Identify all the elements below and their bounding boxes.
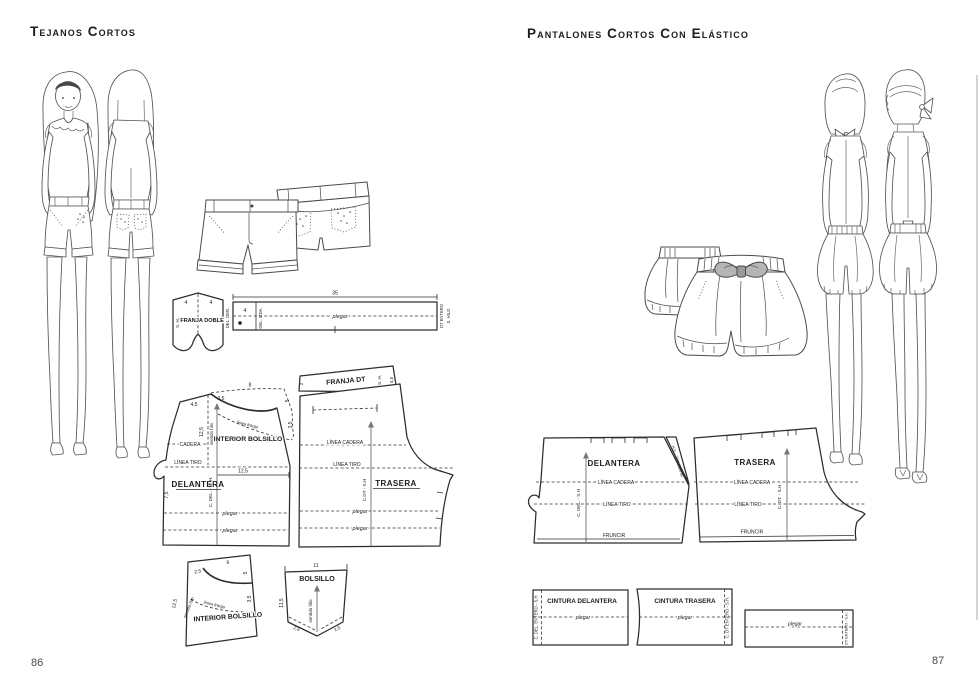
girl-front-shorts [45, 206, 92, 249]
back-grain-label: C.DT - S.H [362, 479, 367, 501]
girl-back-waistband [113, 200, 150, 209]
front-interior-bolsillo-label: INTERIOR BOLSILLO [214, 436, 283, 443]
rfront-linea-cadera: LÍNEA CADERA [598, 479, 635, 486]
front-meas-35: 3,5 [288, 421, 294, 428]
front-meas-8: 8 [249, 383, 252, 389]
girl-c-head [825, 74, 865, 134]
strip-front-left-label: DEL. IZDA. [258, 307, 263, 328]
pattern-piece-waist-strip: 35 4 DEL. DER. DEL. IZDA. plegar DT ENTE… [225, 291, 451, 334]
girl-back-feet [116, 447, 149, 458]
flat-bow-knot [737, 266, 746, 277]
front-cadera-label: CADERA [180, 442, 202, 448]
back-linea-cadera: LÍNEA CADERA [327, 439, 364, 446]
girl-d-flipflop-right [912, 472, 927, 483]
girl-c-feet [830, 452, 862, 465]
pocket-meas-115: 11,5 [279, 598, 285, 608]
front-waistband-label: CINTURA DELANTERA [547, 598, 617, 605]
right-strip-fold: plegar [787, 622, 802, 628]
franja-doble-width-right: 4 [210, 300, 213, 306]
pocket-label: BOLSILLO [299, 576, 335, 583]
pattern-piece-front-waistband: CINTURA DELANTERA plegar C. DEL. ENTERO … [533, 590, 628, 645]
pattern-piece-front-left-page: 4,5 2,5 8 5 3,5 12,5 sentido hilo línea … [154, 383, 294, 547]
strip-grain-label-2: S. HILO [446, 308, 451, 324]
pattern-piece-right-strip: plegar DT ENTERO - S.H. [745, 610, 853, 647]
strip-fold-label: plegar [332, 314, 348, 320]
back-waistband-grain: C. DT ENTERO - S.H. [725, 597, 730, 638]
illustration-girls-elastic-shorts [817, 70, 936, 483]
back-linea-tiro: LÍNEA TIRO [333, 461, 361, 468]
rback-grain-label: C. DT. - S.H [777, 485, 782, 510]
girl-d-head [886, 70, 925, 124]
right-strip-grain: DT ENTERO - S.H. [845, 612, 849, 645]
back-waistband-label: CINTURA TRASERA [654, 598, 716, 605]
flat-eback-waistband [659, 247, 721, 258]
girl-c-leg-right [852, 294, 862, 454]
front-linea-tiro-label: LÍNEA TIRO [174, 459, 202, 466]
girl-d-flipflop-left [895, 468, 910, 479]
girl-d-leg-left [892, 294, 907, 468]
book-spread: Tejanos Cortos Pantalones Cortos Con Elá… [0, 0, 980, 700]
pattern-piece-franja-doble: 4 4 S. H. FRANJA DOBLE [173, 293, 224, 351]
strip-button-mark [238, 321, 242, 325]
front-meas-125-vert: 12,5 [199, 427, 205, 437]
front-meas-75: 7,5 [164, 491, 170, 498]
pattern-spread-graphic: 4 4 S. H. FRANJA DOBLE 35 4 DEL. DER. DE… [0, 0, 980, 700]
strip-front-right-label: DEL. DER. [225, 308, 230, 328]
girl-front-cuffs [44, 247, 93, 257]
franja-dt-meas-45: 4,5 [389, 376, 394, 383]
front-waistband-fold: plegar [575, 615, 591, 621]
pocket-grain-hint: sentido hilo [308, 599, 313, 623]
rfront-fruncir: FRUNCIR [603, 533, 626, 539]
back-waistband-fold: plegar [677, 615, 693, 621]
rback-label: TRASERA [734, 458, 775, 467]
back-fold-1: plegar [352, 509, 368, 515]
girl-front-leg-right [75, 257, 87, 443]
front-waistband-grain: C. DEL. ENTERO - S.H [534, 596, 539, 640]
franja-dt-meas-2: 2 [299, 382, 304, 385]
rfront-grain-label: C. DEL. - S.H [576, 489, 581, 517]
girl-back-shorts [109, 209, 153, 250]
flat-front-body [199, 212, 297, 264]
lining-meas-35: 3,5 [247, 595, 253, 602]
girl-front-leg-left [47, 257, 62, 443]
rback-fruncir: FRUNCIR [741, 530, 764, 536]
girl-d-leg-right [916, 294, 926, 472]
strip-length: 35 [332, 291, 338, 297]
girl-c-tee [825, 136, 866, 226]
pocket-meas-11: 11 [313, 563, 318, 569]
pattern-piece-front-right-page: DELANTERA LÍNEA CADERA LÍNEA TIRO C. DEL… [528, 437, 690, 543]
front-fold-2: plegar [222, 528, 238, 534]
girl-d-bubble-shorts [879, 233, 936, 294]
girl-front-feet [51, 443, 87, 455]
illustration-girls-denim-shorts [42, 70, 157, 458]
front-fold-1: plegar [222, 511, 238, 517]
back-piece-label: TRASERA [375, 479, 416, 488]
pattern-piece-pocket: 11 BOLSILLO sentido hilo 11,5 2,5 2,5 [279, 563, 347, 636]
rfront-linea-tiro: LÍNEA TIRO [603, 501, 631, 508]
pattern-piece-back-left-page: FRANJA DT 2 S. H. 4,5 LÍNEA CADERA LÍNEA… [299, 366, 455, 547]
franja-doble-label: FRANJA DOBLE [180, 318, 224, 324]
front-meas-45: 4,5 [191, 402, 198, 408]
franja-doble-width-left: 4 [185, 300, 188, 306]
girl-c-bubble-shorts [817, 234, 873, 294]
front-meas-25: 2,5 [218, 396, 225, 402]
strip-grain-label-1: DT ENTERO [439, 303, 444, 328]
front-meas-5: 5 [285, 399, 291, 402]
strip-width: 4 [244, 308, 247, 314]
flat-sketch-denim-shorts [197, 182, 370, 274]
girl-d-bow-knot [920, 105, 925, 110]
back-fold-2: plegar [352, 526, 368, 532]
rfront-label: DELANTERA [588, 459, 641, 468]
franja-dt-grain: S. H. [377, 375, 382, 385]
girl-back-leg-left [111, 258, 126, 447]
lining-meas-125: 12,5 [171, 598, 179, 609]
girl-c-elastic-waist [828, 226, 863, 234]
front-meas-125-horiz: 12,5 [238, 469, 248, 475]
flat-front-button [251, 205, 254, 208]
front-piece-label: DELANTERA [172, 480, 225, 489]
pattern-piece-pocket-lining: 2,5 8 5 3,5 12,5 sentido hilo línea fran… [171, 555, 262, 646]
girl-back-leg-right [138, 258, 150, 447]
girl-d-elastic-waist [890, 224, 926, 233]
girl-c-leg-left [826, 294, 841, 452]
pattern-piece-back-waistband: CINTURA TRASERA plegar C. DT ENTERO - S.… [637, 589, 732, 645]
rback-linea-tiro: LÍNEA TIRO [734, 501, 762, 508]
girl-back-cuffs [108, 248, 154, 258]
flat-front-cuffs [197, 260, 298, 274]
lining-meas-25: 2,5 [194, 569, 202, 576]
lining-meas-5: 5 [243, 571, 249, 574]
rback-linea-cadera: LÍNEA CADERA [734, 479, 771, 486]
flat-sketch-elastic-shorts [645, 247, 807, 356]
